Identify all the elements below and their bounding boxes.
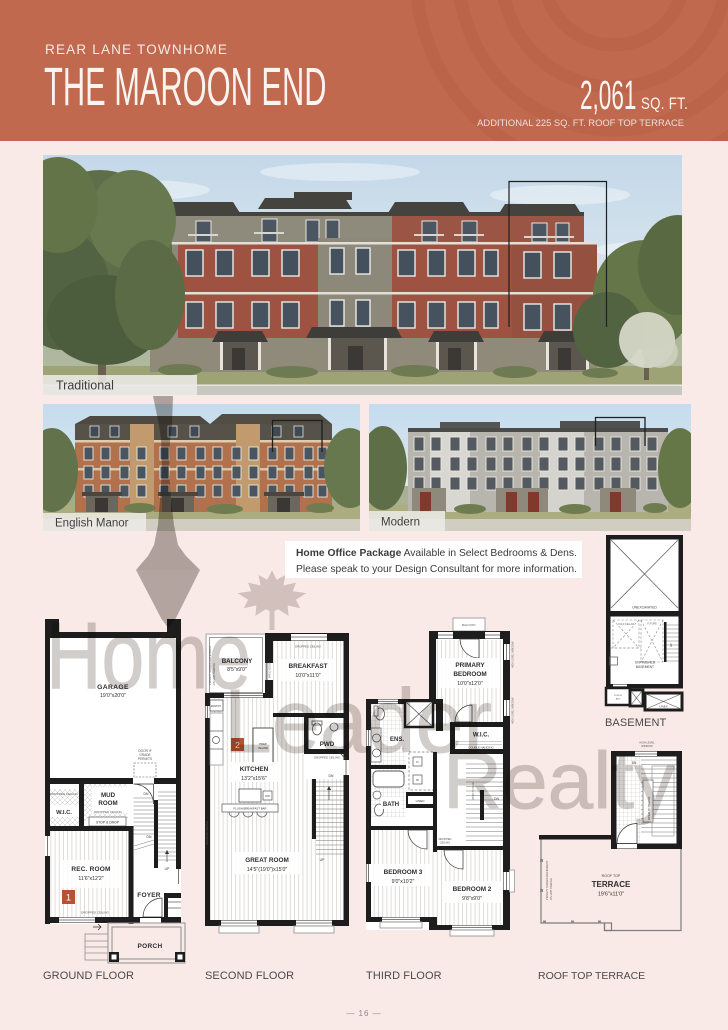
- svg-text:PRIMARY: PRIMARY: [455, 662, 485, 669]
- svg-text:W: W: [416, 778, 419, 782]
- svg-text:UP: UP: [165, 867, 170, 871]
- svg-text:11'6"x12'2": 11'6"x12'2": [78, 876, 103, 882]
- svg-text:BREAKFAST: BREAKFAST: [288, 663, 327, 670]
- svg-text:UNEXCAVATED: UNEXCAVATED: [632, 606, 657, 610]
- svg-text:UP: UP: [669, 643, 673, 647]
- svg-text:FUTURE: FUTURE: [647, 624, 657, 626]
- svg-text:W.I.C.: W.I.C.: [56, 810, 72, 816]
- svg-text:Traditional: Traditional: [56, 379, 114, 393]
- svg-text:CEILING: CEILING: [440, 841, 450, 845]
- svg-text:Realty: Realty: [443, 736, 675, 825]
- svg-text:ABV: ABV: [616, 698, 621, 701]
- svg-text:DROPPED CEILING: DROPPED CEILING: [81, 911, 109, 915]
- svg-text:19'6"x11'0": 19'6"x11'0": [598, 892, 624, 898]
- svg-text:STOP & DROP: STOP & DROP: [96, 821, 120, 825]
- svg-text:Modern: Modern: [381, 517, 420, 529]
- svg-text:UNFINISHED: UNFINISHED: [635, 661, 656, 665]
- svg-text:English Manor: English Manor: [55, 518, 129, 530]
- svg-text:BEDROOM 2: BEDROOM 2: [453, 886, 492, 893]
- svg-text:PRIVACY SCREEN DEPENDENT: PRIVACY SCREEN DEPENDENT: [545, 860, 549, 900]
- svg-text:UNEX.: UNEX.: [659, 705, 668, 709]
- svg-text:BASEMENT: BASEMENT: [636, 665, 654, 669]
- svg-text:LINEN: LINEN: [416, 799, 425, 803]
- svg-text:ROOF TOP: ROOF TOP: [602, 874, 621, 878]
- svg-text:REC. ROOM: REC. ROOM: [71, 866, 110, 873]
- svg-text:DROPPED: DROPPED: [439, 837, 452, 841]
- svg-text:DN: DN: [147, 835, 152, 839]
- svg-text:PERMITS: PERMITS: [138, 757, 152, 761]
- svg-text:HIGH LEVEL WINDOW: HIGH LEVEL WINDOW: [512, 641, 515, 668]
- svg-text:ROOM: ROOM: [98, 800, 117, 807]
- svg-text:BASEMENT: BASEMENT: [605, 717, 666, 729]
- svg-text:BEDROOM 3: BEDROOM 3: [384, 869, 423, 876]
- svg-text:GREAT ROOM: GREAT ROOM: [245, 857, 289, 864]
- svg-text:DN: DN: [144, 792, 149, 796]
- svg-text:BATH: BATH: [383, 802, 399, 808]
- svg-text:FLUSH BREAKFAST BAR: FLUSH BREAKFAST BAR: [234, 807, 267, 811]
- svg-text:DN: DN: [329, 774, 334, 778]
- svg-text:DROPPED CEILING: DROPPED CEILING: [94, 810, 122, 814]
- svg-text:COLD CELLAR: COLD CELLAR: [618, 623, 634, 626]
- svg-text:DW: DW: [265, 794, 270, 798]
- svg-text:BALCONY: BALCONY: [462, 623, 476, 627]
- svg-text:9'8"x9'0": 9'8"x9'0": [462, 896, 482, 902]
- svg-text:Home: Home: [46, 603, 251, 709]
- svg-text:1: 1: [66, 893, 71, 903]
- svg-text:9'0"x10'2": 9'0"x10'2": [392, 879, 415, 885]
- svg-text:13'2"x15'6": 13'2"x15'6": [241, 776, 267, 782]
- svg-text:PORCH: PORCH: [614, 695, 622, 697]
- svg-text:PORCH: PORCH: [138, 943, 163, 950]
- svg-text:DROPPED CEILING: DROPPED CEILING: [50, 792, 78, 796]
- svg-text:TERRACE: TERRACE: [592, 880, 631, 889]
- svg-text:UP: UP: [320, 858, 325, 862]
- svg-text:MUD: MUD: [101, 792, 116, 799]
- svg-text:DROPPED CEILING: DROPPED CEILING: [295, 645, 321, 649]
- svg-text:DROPPED CEILING: DROPPED CEILING: [205, 821, 209, 845]
- svg-text:HIGH LEVEL WINDOW: HIGH LEVEL WINDOW: [512, 697, 515, 724]
- svg-text:FOYER: FOYER: [137, 892, 160, 899]
- svg-text:14'5"(19'0")x15'0": 14'5"(19'0")x15'0": [247, 867, 288, 873]
- svg-text:ON UNIT PAIRING: ON UNIT PAIRING: [549, 878, 553, 900]
